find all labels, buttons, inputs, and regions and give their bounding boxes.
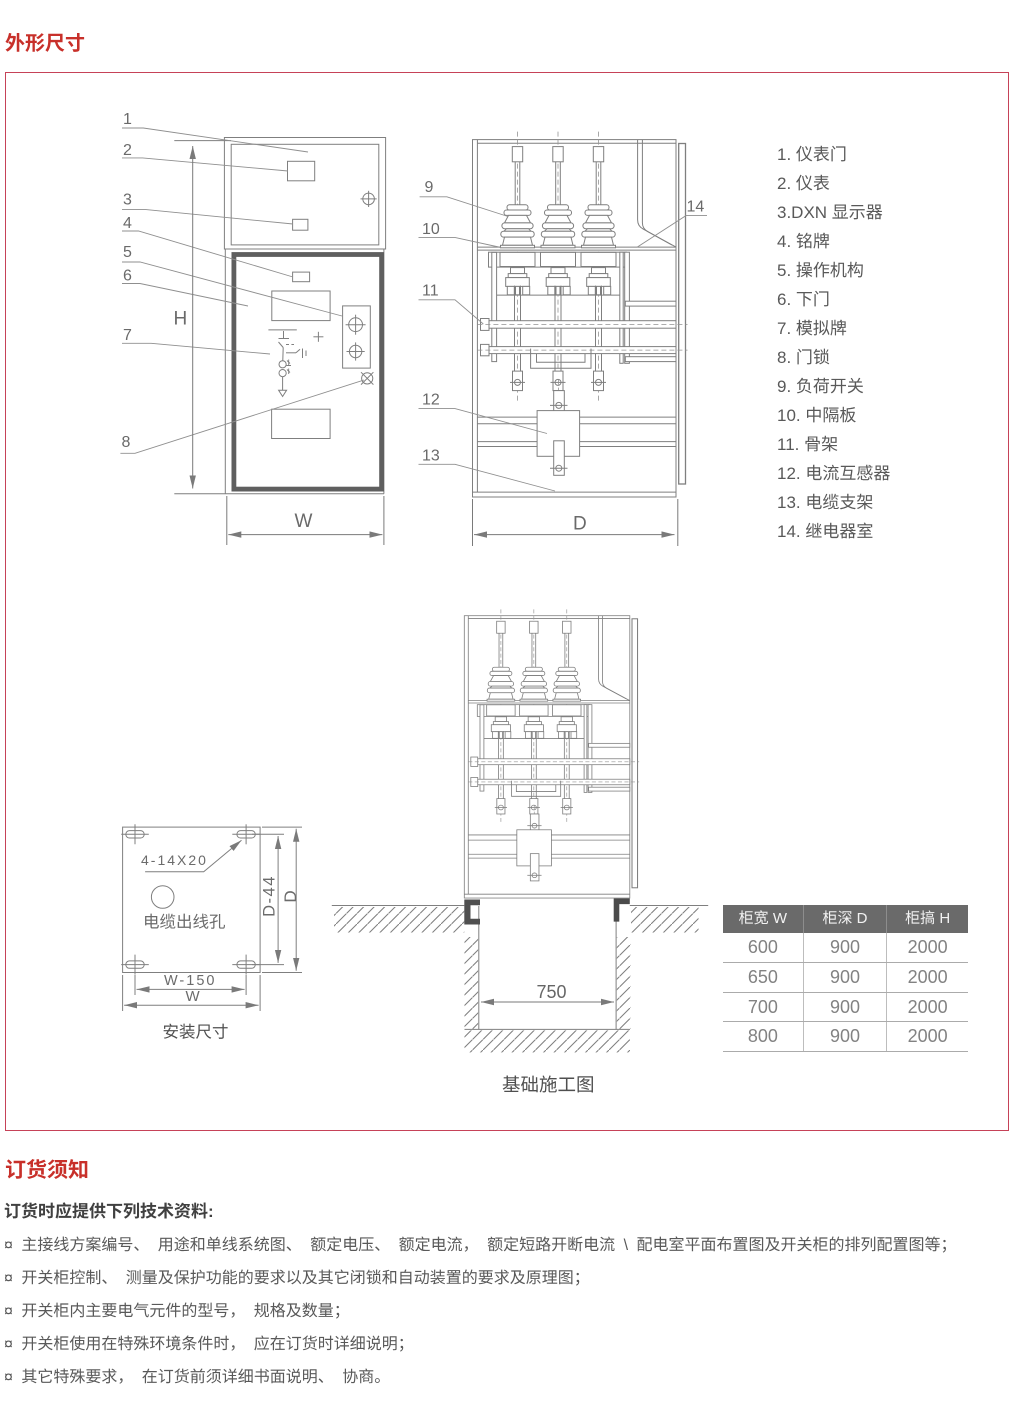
svg-text:W: W [186,988,201,1005]
svg-text:D: D [573,514,587,535]
svg-text:7: 7 [123,327,132,344]
svg-text:2: 2 [123,142,132,159]
svg-text:4-14X20: 4-14X20 [141,852,208,868]
svg-text:电缆出线孔: 电缆出线孔 [143,914,226,932]
svg-text:D: D [281,890,300,902]
svg-text:4: 4 [123,215,132,232]
svg-text:H: H [174,309,188,330]
svg-text:10: 10 [422,221,440,238]
svg-text:W-150: W-150 [164,973,216,989]
svg-text:14: 14 [687,199,705,216]
svg-text:9: 9 [425,179,434,196]
svg-text:5: 5 [123,244,132,261]
svg-text:D-44: D-44 [261,875,279,917]
svg-text:1: 1 [123,111,132,128]
svg-text:12: 12 [422,392,440,409]
svg-text:13: 13 [422,447,440,464]
svg-text:11: 11 [422,283,439,300]
svg-text:8: 8 [122,434,131,451]
svg-text:基础施工图: 基础施工图 [502,1074,595,1095]
svg-text:3: 3 [123,192,132,209]
svg-text:750: 750 [537,982,567,1002]
svg-text:6: 6 [123,268,132,285]
svg-text:安装尺寸: 安装尺寸 [163,1024,229,1042]
svg-text:W: W [295,511,313,532]
